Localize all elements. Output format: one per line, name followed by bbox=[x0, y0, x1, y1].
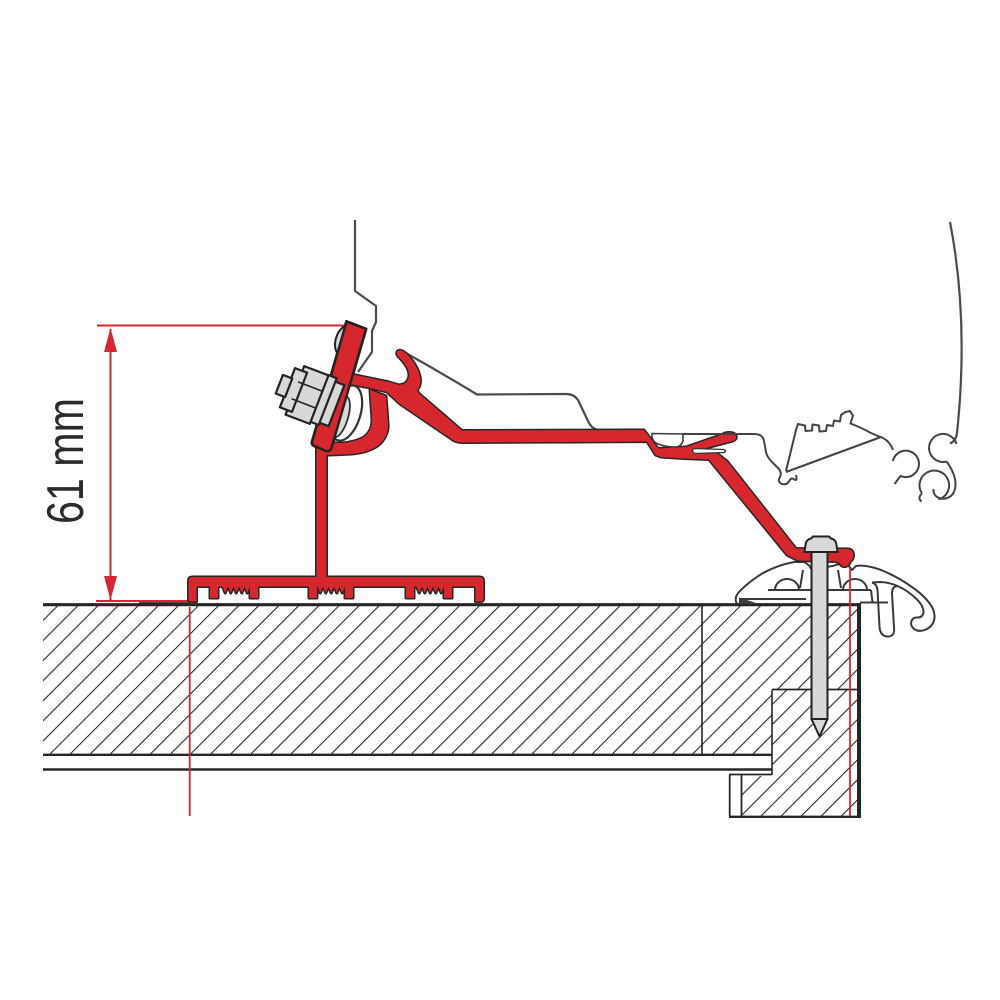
svg-text:61 mm: 61 mm bbox=[37, 398, 95, 524]
